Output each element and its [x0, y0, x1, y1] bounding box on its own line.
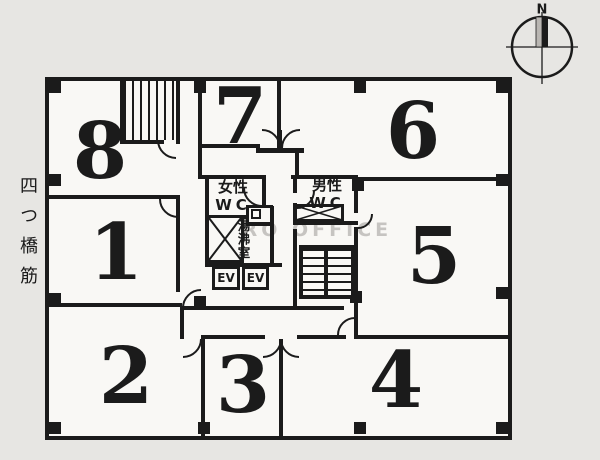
elevator-1-label: EV: [217, 271, 234, 285]
elevator-2-label: EV: [247, 271, 264, 285]
door-arc: [281, 339, 299, 357]
room-2-number: 2: [99, 338, 153, 416]
mens-wc-label: 男性 WC: [309, 176, 345, 212]
mens-wc-line1: 男性: [309, 176, 345, 194]
room-8-number: 8: [73, 113, 127, 191]
elevator-1: EV: [212, 266, 240, 290]
compass-needle-shaded: [536, 17, 542, 47]
elevator-2: EV: [242, 266, 269, 290]
room-7-number: 7: [213, 78, 267, 156]
room-5-number: 5: [407, 218, 461, 296]
door-arc: [358, 214, 372, 228]
door-arc: [183, 339, 201, 357]
compass-north-label: N: [537, 3, 548, 18]
door-arc: [282, 130, 300, 148]
womens-wc-line2: WC: [215, 196, 251, 214]
door-arc: [338, 318, 355, 335]
door-arc: [160, 199, 178, 217]
room-1-number: 1: [89, 214, 143, 292]
womens-wc-line1: 女性: [215, 178, 251, 196]
room-3-number: 3: [216, 347, 270, 425]
room-4-number: 4: [369, 342, 423, 420]
street-name-label: 四つ橋筋: [14, 176, 40, 296]
door-arc: [158, 140, 176, 158]
mens-wc-line2: WC: [309, 194, 345, 212]
kitchenette-label: 湯沸室: [236, 219, 249, 260]
door-arc: [183, 290, 201, 308]
compass-needle: [542, 17, 548, 47]
room-6-number: 6: [386, 93, 440, 171]
floor-plan: ZERO OFFICE: [0, 0, 600, 460]
womens-wc-label: 女性 WC: [215, 178, 251, 214]
